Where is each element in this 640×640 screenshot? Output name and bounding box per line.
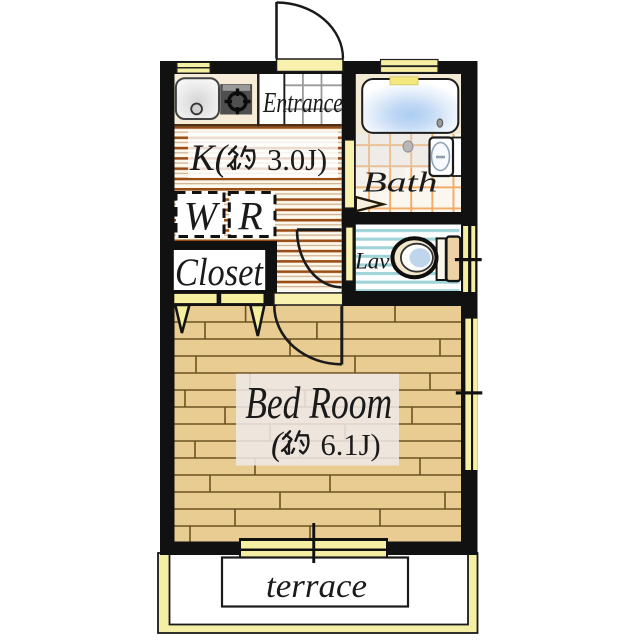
svg-text:Entrance: Entrance — [262, 88, 343, 119]
svg-text:6.1J): 6.1J) — [321, 428, 381, 462]
svg-text:Bed Room: Bed Room — [245, 378, 392, 428]
svg-text:W: W — [184, 194, 221, 239]
svg-text:terrace: terrace — [266, 568, 367, 605]
svg-text:Closet: Closet — [175, 251, 264, 294]
svg-text:Lav: Lav — [354, 249, 390, 274]
svg-text:3.0J): 3.0J) — [267, 143, 327, 177]
svg-text:K(: K( — [189, 138, 230, 179]
svg-text:Bath: Bath — [363, 167, 438, 199]
svg-text:R: R — [237, 194, 262, 239]
